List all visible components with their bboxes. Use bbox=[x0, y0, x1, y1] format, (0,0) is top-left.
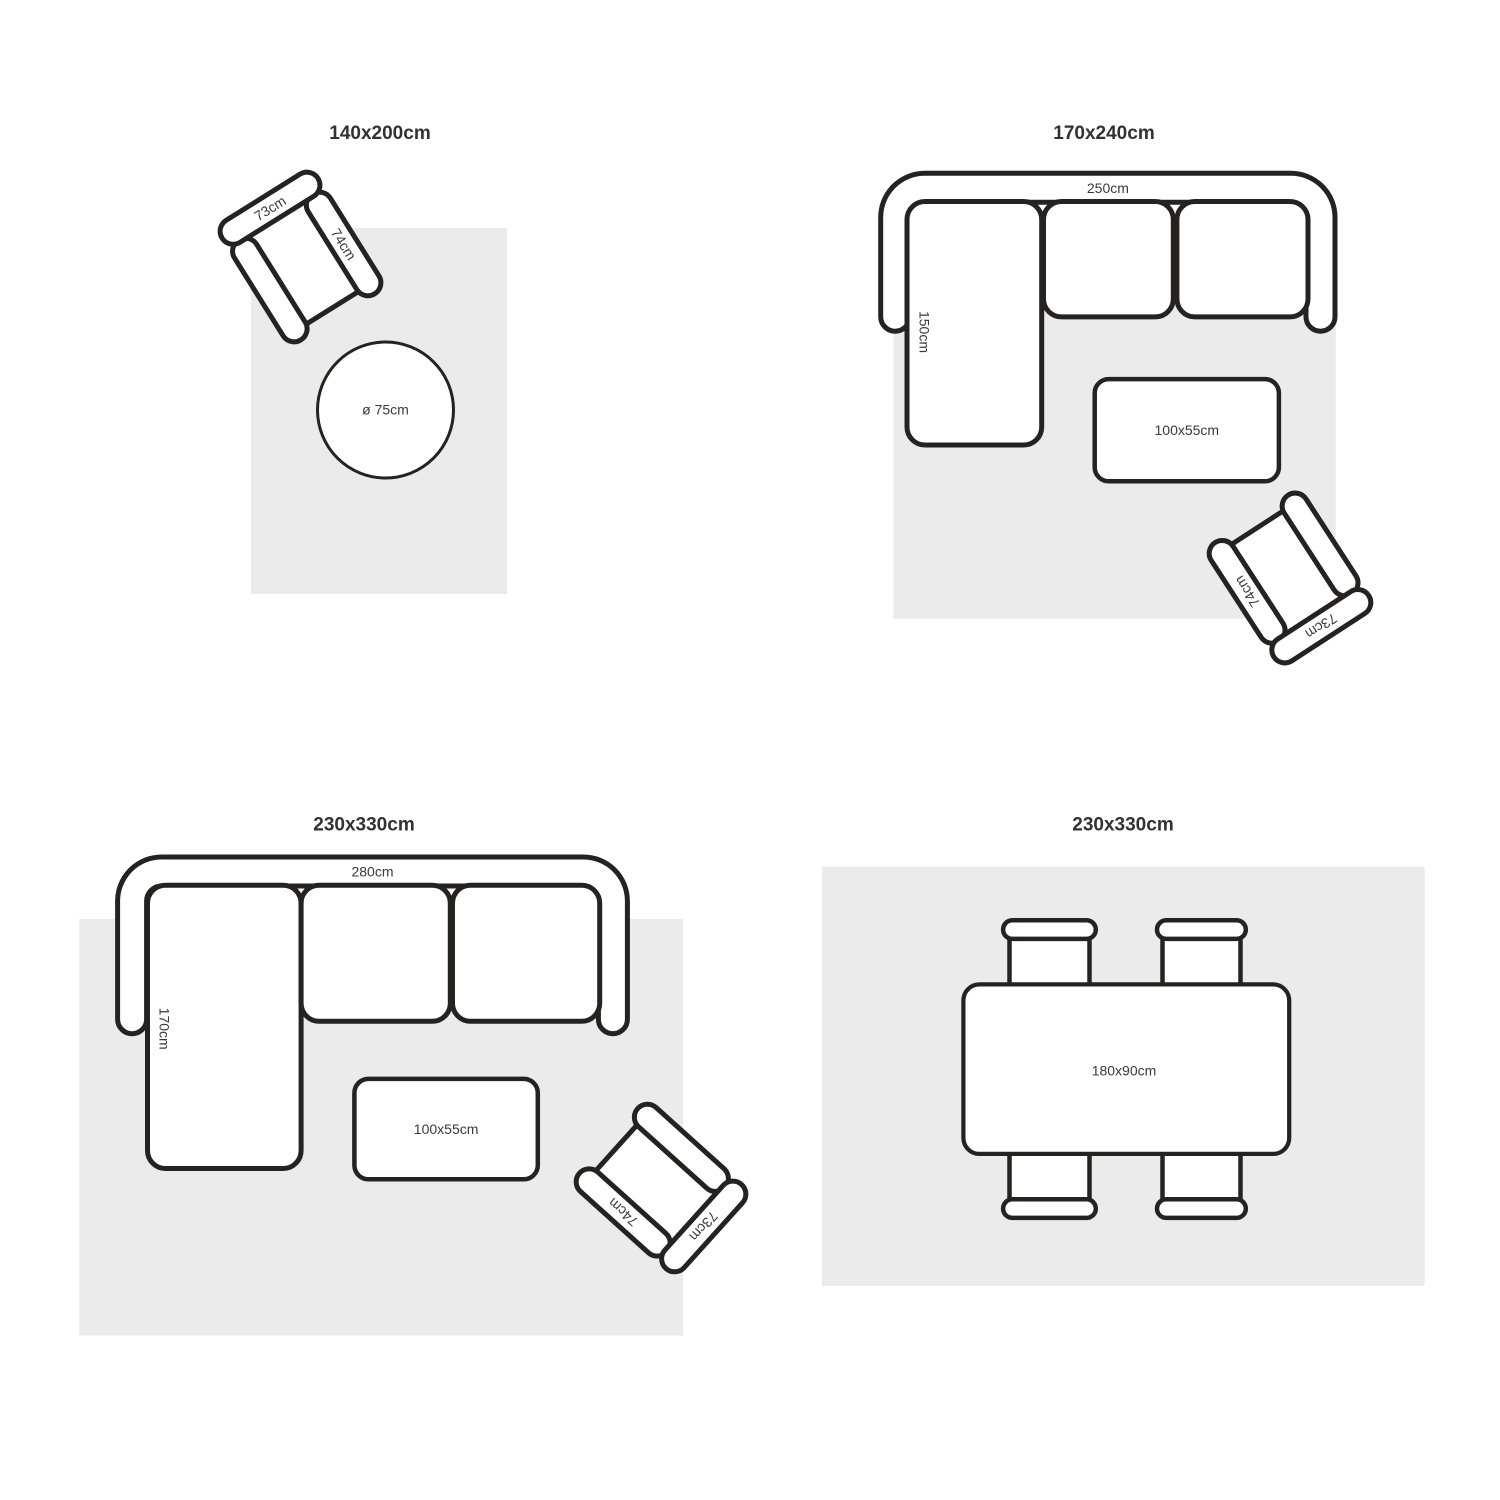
svg-text:230x330cm: 230x330cm bbox=[313, 815, 414, 836]
svg-text:230x330cm: 230x330cm bbox=[1072, 815, 1173, 836]
svg-text:100x55cm: 100x55cm bbox=[1155, 422, 1220, 438]
svg-text:170cm: 170cm bbox=[157, 1008, 173, 1050]
svg-text:ø 75cm: ø 75cm bbox=[362, 402, 409, 418]
svg-text:100x55cm: 100x55cm bbox=[414, 1121, 479, 1137]
svg-text:280cm: 280cm bbox=[351, 864, 393, 880]
svg-text:150cm: 150cm bbox=[916, 311, 932, 353]
svg-text:140x200cm: 140x200cm bbox=[329, 123, 430, 144]
svg-text:170x240cm: 170x240cm bbox=[1053, 123, 1154, 144]
svg-text:250cm: 250cm bbox=[1087, 180, 1129, 196]
svg-text:180x90cm: 180x90cm bbox=[1092, 1062, 1157, 1078]
